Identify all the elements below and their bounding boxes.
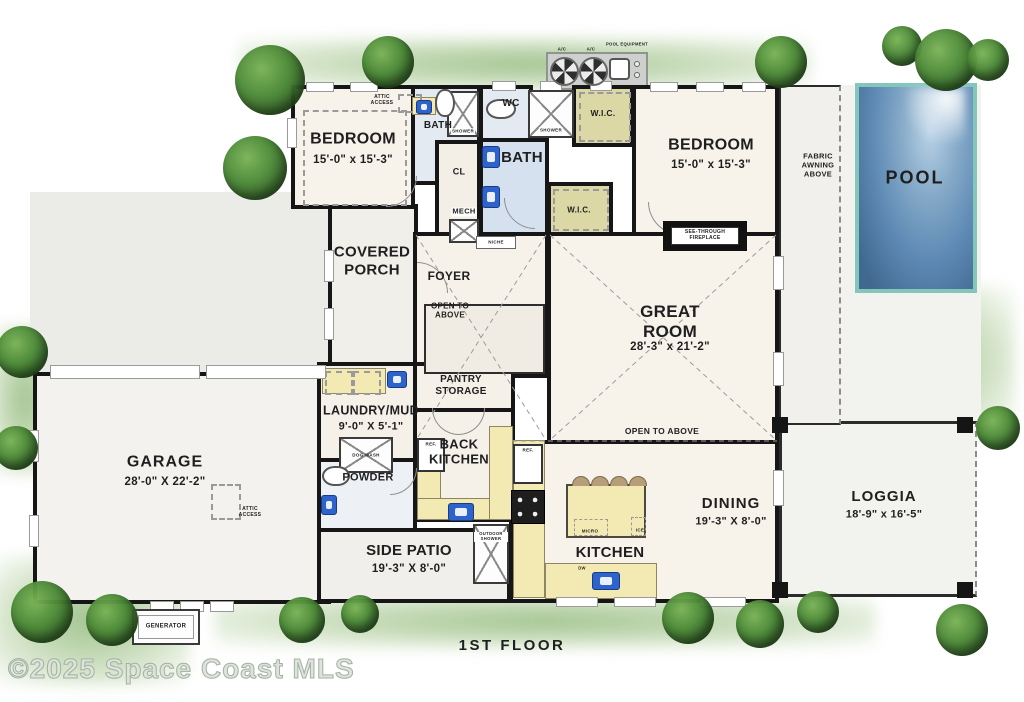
- tree: [755, 36, 807, 88]
- room-label-mech: MECH: [451, 208, 476, 217]
- room-label-great-room: GREAT ROOM: [624, 302, 716, 342]
- awning-strip: [779, 85, 841, 425]
- pool-equipment-box: [609, 58, 630, 80]
- window: [556, 597, 598, 607]
- room-label-foyer: FOYER: [428, 269, 471, 283]
- fabric-awning-label: FABRIC AWNING ABOVE: [792, 153, 844, 180]
- room-label-powder: POWDER: [342, 472, 393, 485]
- room-label-pantry: PANTRY STORAGE: [425, 374, 497, 398]
- refrigerator-label: REF.: [523, 447, 534, 452]
- powder-sink: [321, 495, 337, 515]
- room-label-wic-top: W.I.C.: [591, 108, 616, 118]
- driveway: [30, 192, 330, 376]
- room-dims-bedroom-right: 15'-0" x 15'-3": [671, 159, 751, 173]
- garage-door: [50, 365, 200, 379]
- room-label-wc: WC: [502, 98, 519, 110]
- ac-unit-fan: [550, 57, 579, 86]
- tree: [915, 29, 977, 91]
- range: [511, 490, 545, 524]
- floor-plan-canvas: BEDROOM 15'-0" x 15'-3" BATH SHOWER WC S…: [0, 0, 1024, 702]
- room-dims-bedroom-left: 15'-0" x 15'-3": [313, 154, 393, 168]
- tree: [797, 591, 839, 633]
- window: [29, 430, 39, 462]
- window: [492, 81, 516, 91]
- window: [324, 308, 334, 340]
- bath-sink: [482, 146, 500, 168]
- laundry-sink: [387, 371, 407, 388]
- window: [650, 82, 678, 92]
- exterior-step: [210, 601, 234, 612]
- window: [773, 352, 784, 386]
- outdoor-shower-label: OUTDOOR SHOWER: [474, 532, 508, 542]
- room-dims-garage: 28'-0" X 22'-2": [125, 476, 206, 490]
- window: [700, 597, 746, 607]
- tree: [736, 600, 784, 648]
- room-label-covered-porch: COVERED PORCH: [322, 243, 422, 278]
- attic-access-label: ATTIC ACCESS: [233, 507, 267, 519]
- window: [350, 82, 378, 92]
- window: [287, 118, 297, 148]
- microwave-label: MICRO: [582, 528, 599, 533]
- room-label-wic-lower: W.I.C.: [567, 205, 591, 214]
- tree: [882, 26, 922, 66]
- refrigerator-label: REF.: [426, 441, 437, 446]
- room-label-bedroom-left: BEDROOM: [310, 131, 396, 150]
- open-to-above-label: OPEN TO ABOVE: [418, 302, 482, 321]
- room-label-garage: GARAGE: [127, 454, 203, 473]
- dishwasher-label: DW: [578, 567, 586, 572]
- mech-equipment: [449, 219, 479, 243]
- kitchen-sink: [592, 572, 620, 590]
- generator-label: GENERATOR: [146, 623, 186, 630]
- window: [29, 515, 39, 547]
- room-dims-laundry-mud: 9'-0" X 5'-1": [339, 421, 404, 434]
- tree: [362, 36, 414, 88]
- pool-equipment-knob: [634, 72, 640, 78]
- open-to-above-label: OPEN TO ABOVE: [625, 426, 699, 436]
- tree: [936, 604, 988, 656]
- watermark: ©2025 Space Coast MLS: [8, 653, 355, 685]
- room-label-laundry-mud: LAUNDRY/MUD: [323, 404, 419, 419]
- toilet: [435, 89, 455, 117]
- room-label-kitchen: KITCHEN: [576, 544, 645, 562]
- room-covered-porch: [328, 204, 418, 378]
- dog-wash-label: DOG WASH: [351, 452, 381, 457]
- window: [773, 470, 784, 506]
- window: [614, 597, 656, 607]
- ac-unit-fan: [579, 57, 608, 86]
- window: [306, 82, 334, 92]
- ac-label: A/C: [587, 46, 596, 51]
- room-dims-loggia: 18'-9" x 16'-5": [846, 509, 922, 522]
- room-dims-dining: 19'-3" X 8'-0": [695, 516, 766, 529]
- room-dims-side-patio: 19'-3" X 8'-0": [372, 563, 446, 577]
- loggia-column: [772, 417, 788, 433]
- room-label-dining: DINING: [702, 495, 761, 513]
- garage-door: [206, 365, 326, 379]
- window: [742, 82, 766, 92]
- ice-maker-label: ICE: [636, 527, 644, 532]
- pool-equipment-knob: [634, 61, 640, 67]
- tree: [223, 136, 287, 200]
- washer-outline: [325, 371, 353, 395]
- room-label-pool: POOL: [885, 167, 944, 188]
- fireplace-label: SEE-THROUGH FIREPLACE: [674, 230, 736, 242]
- loggia-column: [772, 582, 788, 598]
- page-title: 1ST FLOOR: [459, 637, 566, 655]
- shower-label: SHOWER: [451, 128, 475, 133]
- window: [696, 82, 724, 92]
- dryer-outline: [353, 371, 381, 395]
- room-label-loggia: LOGGIA: [851, 488, 916, 506]
- tree: [967, 39, 1009, 81]
- pool-ledge-highlight: [905, 88, 965, 143]
- niche-label: NICHE: [488, 239, 504, 244]
- room-label-bedroom-right: BEDROOM: [668, 137, 754, 156]
- room-label-side-patio: SIDE PATIO: [366, 542, 452, 560]
- tree: [976, 406, 1020, 450]
- room-dims-great-room: 28'-3" x 21'-2": [630, 341, 710, 355]
- room-label-closet: CL: [453, 167, 466, 178]
- pool-equipment-label: POOL EQUIPMENT: [605, 43, 649, 48]
- ac-label: A/C: [558, 46, 567, 51]
- window: [773, 256, 784, 290]
- loggia-column: [957, 417, 973, 433]
- back-kitchen-sink: [448, 503, 474, 521]
- shower-label: SHOWER: [539, 127, 563, 132]
- attic-access-label: ATTIC ACCESS: [364, 95, 400, 107]
- bath-sink: [482, 186, 500, 208]
- loggia-column: [957, 582, 973, 598]
- room-label-bath-left: BATH: [424, 120, 452, 132]
- room-label-bath-main: BATH: [501, 149, 543, 167]
- vanity-sink: [416, 100, 432, 114]
